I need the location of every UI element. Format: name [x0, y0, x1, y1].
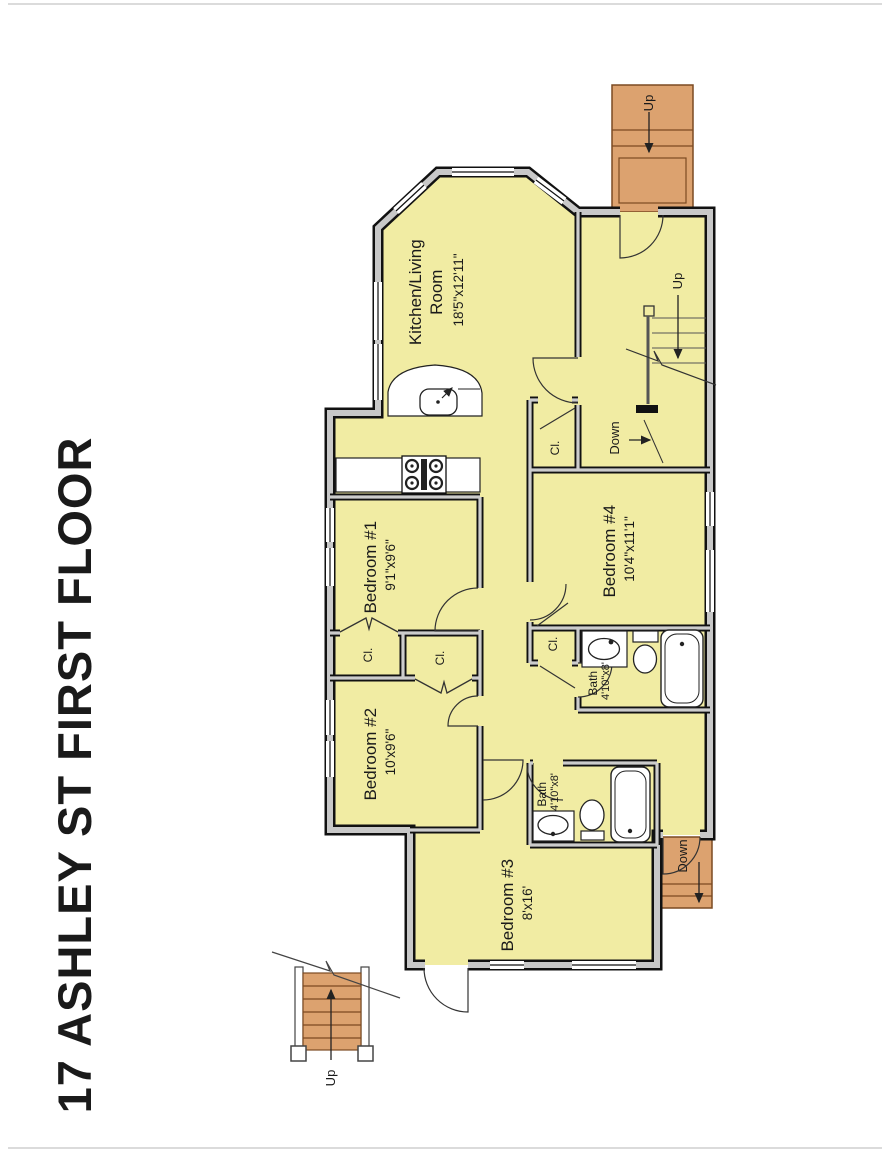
down-label: Down — [607, 421, 622, 454]
porch-stairs-bottom-right: Down — [660, 837, 712, 908]
toilet-bowl — [634, 645, 657, 673]
toilet-tank — [633, 631, 658, 642]
porch-stairs-top: Up — [612, 85, 693, 212]
vanity-sink — [538, 816, 568, 835]
vanity-sink — [589, 639, 620, 660]
closet-label-4: Cl. — [546, 637, 560, 652]
up-label: Up — [670, 273, 685, 290]
down-label: Down — [675, 839, 690, 872]
front-door — [424, 968, 468, 1012]
room-label-bath-upper: Bath 4'10"x8' — [584, 662, 612, 700]
floor-plan-image: Up Down Up — [0, 0, 890, 1152]
closet-label-3: Cl. — [548, 441, 562, 456]
front-stairs-bottom-left: Up — [272, 952, 400, 1086]
page-title: 17 ASHLEY ST FIRST FLOOR — [48, 437, 101, 1114]
up-label: Up — [323, 1070, 338, 1087]
closet-label-1: Cl. — [361, 648, 375, 663]
closet-label-2: Cl. — [433, 651, 447, 666]
stove — [402, 456, 446, 493]
floor-plan-page: Up Down Up — [0, 0, 890, 1152]
room-label-bath-lower: Bath 4'10"x8' — [533, 773, 561, 811]
toilet-bowl — [580, 800, 604, 830]
up-label: Up — [641, 95, 656, 112]
bathtub — [661, 630, 703, 707]
toilet-base — [581, 831, 604, 840]
